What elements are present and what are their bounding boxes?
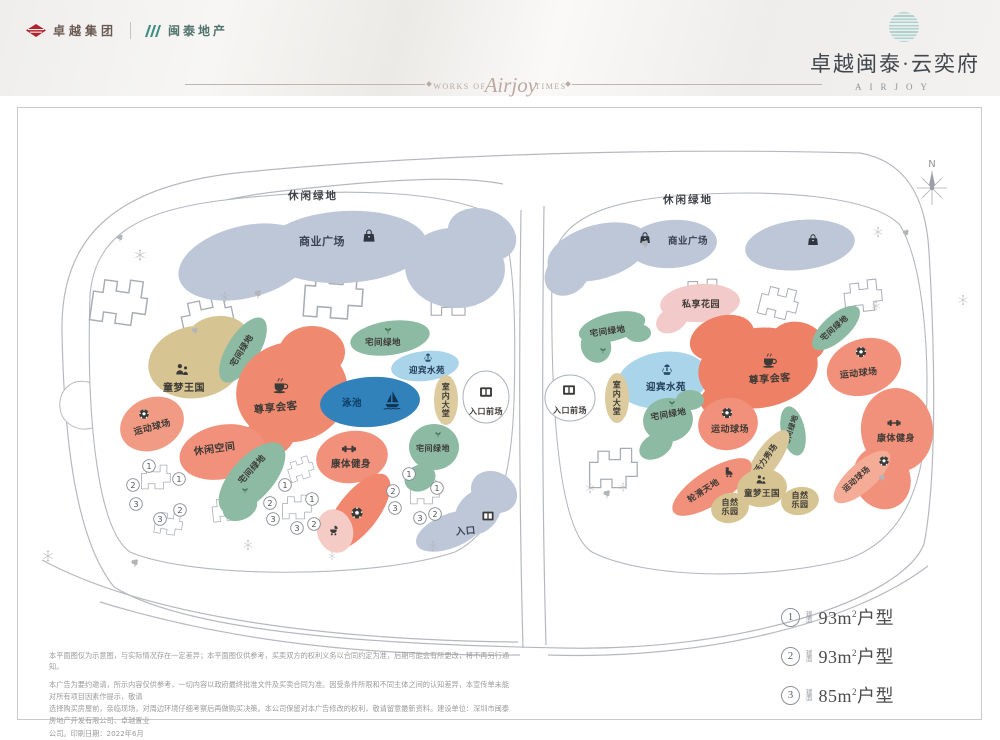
legend-area-prefix: 建面	[806, 689, 813, 702]
zone-shape	[625, 324, 651, 342]
legend-row: 1建面93m2户型	[781, 604, 894, 630]
snowflake-icon	[43, 551, 52, 562]
legend-unit-number: 3	[781, 686, 800, 705]
snowflake-icon	[959, 295, 967, 305]
legend-area-prefix: 建面	[806, 611, 813, 624]
unit-badge: 1	[306, 493, 319, 506]
unit-badge-number: 1	[282, 480, 287, 490]
zone-label: 童梦王国	[163, 381, 205, 394]
unit-type-legend: 1建面93m2户型2建面93m2户型3建面85m2户型	[781, 604, 894, 721]
zone-label: 入口	[454, 525, 476, 538]
legend-row: 2建面93m2户型	[781, 643, 894, 669]
zone-label: 入口前场	[468, 406, 503, 416]
disclaimer-para1: 本平面图仅为示意图，与实际情况存在一定差异；本平面图仅供参考，买卖双方的权利义务…	[49, 651, 513, 673]
unit-badge: 1	[403, 468, 416, 481]
unit-badge-number: 1	[146, 461, 151, 471]
compass-north-label: N	[928, 159, 935, 170]
unit-badge-number: 1	[406, 469, 411, 479]
legend-area-prefix: 建面	[806, 650, 813, 663]
road-line-6	[100, 602, 520, 655]
unit-badge-number: 3	[294, 523, 299, 533]
unit-badge-number: 1	[309, 494, 314, 504]
unit-badge: 3	[389, 502, 402, 515]
compass-hub	[930, 186, 934, 190]
zone-label: 宅间绿地	[365, 337, 401, 348]
unit-badge: 2	[308, 518, 321, 531]
zone-label: 童梦王国	[744, 488, 780, 499]
compass-rose: N	[917, 159, 947, 205]
unit-badge-number: 1	[176, 474, 181, 484]
legend-unit-label: 93m2户型	[819, 604, 895, 630]
unit-badge: 3	[414, 512, 427, 525]
unit-badge: 2	[264, 497, 277, 510]
unit-badge: 2	[127, 479, 140, 492]
unit-badge: 2	[429, 508, 442, 521]
disclaimer: 本平面图仅为示意图，与实际情况存在一定差异；本平面图仅供参考，买卖双方的权利义务…	[49, 651, 513, 740]
zone-shinei-zuo: 室内大堂	[434, 375, 458, 425]
unit-badge: 2	[387, 485, 400, 498]
unit-badge-number: 2	[432, 509, 437, 519]
unit-badge: 3	[154, 513, 167, 526]
region-label: 休闲绿地	[287, 189, 338, 202]
unit-badge: 3	[291, 522, 304, 535]
soccer-icon	[351, 507, 362, 518]
unit-badge-number: 3	[392, 503, 397, 513]
zone-label: 迎宾水苑	[409, 365, 445, 376]
disclaimer-line: 本广告为要约邀请，所示内容仅供参考，一切内容以政府最终批准文件及买卖合同为准。因…	[49, 679, 513, 703]
disclaimer-line: 公司。印刷日期：2022年6月	[49, 728, 513, 740]
zone-shape	[279, 326, 345, 378]
zone-rukou-qianchang-zuo: 入口前场	[463, 371, 509, 423]
disclaimer-para2: 本广告为要约邀请，所示内容仅供参考，一切内容以政府最终批准文件及买卖合同为准。因…	[49, 679, 513, 740]
zone-label: 康体健身	[877, 432, 915, 444]
zone-label: 泳池	[342, 397, 362, 409]
unit-badge-number: 2	[311, 519, 316, 529]
unit-badge: 1	[143, 460, 156, 473]
legend-unit-number: 1	[781, 608, 800, 627]
unit-badge-number: 2	[267, 498, 272, 508]
zone-label: 自然乐园	[722, 497, 739, 516]
compass-north-pointer	[929, 171, 935, 188]
zone-label: 商业广场	[299, 234, 345, 248]
road-line-3	[520, 210, 523, 648]
zone-label: 康体健身	[330, 458, 371, 470]
unit-badge-number: 2	[390, 486, 395, 496]
zone-label: 宅间绿地	[416, 443, 450, 453]
zone-label: 迎宾水苑	[646, 381, 686, 393]
legend-unit-label: 85m2户型	[819, 682, 895, 708]
unit-badge: 1	[431, 482, 444, 495]
unit-badge: 1	[279, 479, 292, 492]
gate-icon	[482, 512, 493, 521]
region-label: 休闲绿地	[662, 193, 713, 206]
zone-rukou-qianchang-you: 入口前场	[545, 375, 595, 421]
legend-row: 3建面85m2户型	[781, 682, 894, 708]
compass: N	[917, 159, 947, 205]
zone-label: 室内大堂	[442, 381, 451, 418]
unit-badge: 1	[173, 473, 186, 486]
unit-badge-number: 3	[133, 499, 138, 509]
zone-label: 入口前场	[552, 405, 587, 415]
zone-label: 自然乐园	[792, 490, 809, 509]
soccer-icon	[856, 347, 866, 357]
unit-badge-number: 2	[130, 480, 135, 490]
soccer-icon	[879, 456, 889, 466]
legend-unit-number: 2	[781, 647, 800, 666]
unit-badge: 3	[130, 498, 143, 511]
legend-unit-label: 93m2户型	[819, 643, 895, 669]
gate-icon	[480, 387, 492, 396]
tree-icon	[131, 559, 137, 567]
unit-badge-number: 3	[417, 513, 422, 523]
disclaimer-line: 选择购买房屋前，亲临现场，对周边环境仔细考察后再做购买决策。本公司保留对本广告修…	[49, 703, 513, 727]
soccer-icon	[139, 409, 149, 419]
unit-badge: 3	[267, 513, 280, 526]
unit-badge-number: 1	[434, 483, 439, 493]
soccer-icon	[722, 408, 732, 418]
unit-badge: 2	[174, 504, 187, 517]
zone-label: 私享花园	[681, 298, 720, 310]
unit-badge-number: 2	[177, 505, 182, 515]
zone-shinei-you: 室内大堂	[605, 373, 629, 423]
unit-badge-number: 3	[157, 514, 162, 524]
zone-label: 运动球场	[711, 423, 749, 435]
zone-label: 商业广场	[668, 235, 708, 247]
gate-icon	[563, 385, 575, 394]
unit-badge-number: 3	[270, 514, 275, 524]
zone-label: 室内大堂	[613, 379, 622, 416]
